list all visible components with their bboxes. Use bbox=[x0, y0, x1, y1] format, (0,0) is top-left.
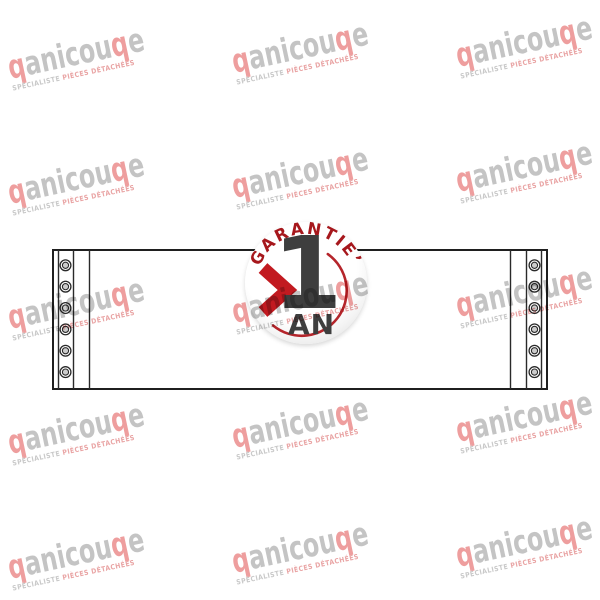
rivet-hole-center bbox=[531, 262, 537, 268]
rivet-hole-center bbox=[62, 262, 68, 268]
rivet-hole-center bbox=[62, 369, 68, 375]
rivet-hole-center bbox=[531, 369, 537, 375]
rivet-hole-center bbox=[62, 305, 68, 311]
rivet-hole-center bbox=[62, 284, 68, 290]
rivet-hole-center bbox=[531, 305, 537, 311]
warranty-badge: GARANTIE’ 1 AN bbox=[245, 222, 367, 344]
rivet-hole-center bbox=[531, 284, 537, 290]
rivet-hole-center bbox=[62, 348, 68, 354]
rivet-hole-center bbox=[62, 326, 68, 332]
product-image: GARANTIE’ 1 AN panicoupe SPÉCIALISTE PIÈ… bbox=[0, 0, 600, 600]
warranty-unit: AN bbox=[245, 311, 378, 339]
rivet-hole-center bbox=[531, 348, 537, 354]
rivet-hole-center bbox=[531, 326, 537, 332]
